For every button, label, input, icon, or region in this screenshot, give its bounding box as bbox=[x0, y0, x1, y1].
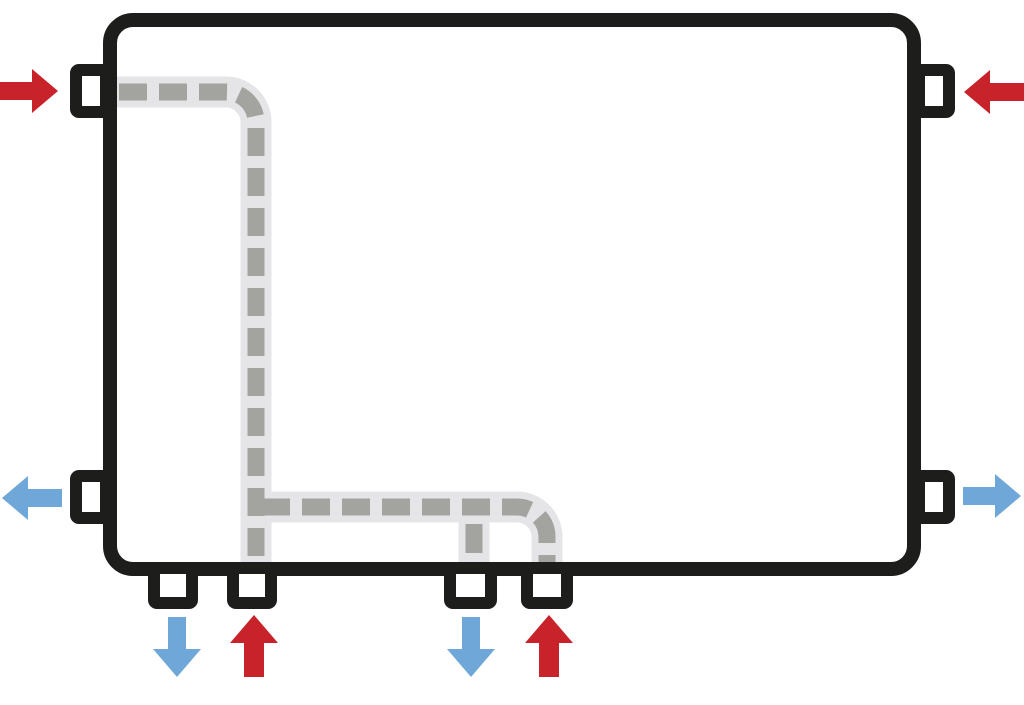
return-arrow-right-bottom-icon bbox=[963, 474, 1021, 518]
radiator-body bbox=[103, 13, 921, 576]
supply-arrow-left-top-icon bbox=[0, 69, 58, 113]
radiator-diagram bbox=[0, 0, 1024, 705]
return-arrow-left-bottom-icon bbox=[2, 476, 62, 520]
port-bottom-4 bbox=[521, 562, 573, 609]
port-right-top bbox=[913, 64, 955, 118]
port-left-bottom bbox=[70, 470, 112, 524]
port-right-bottom bbox=[913, 470, 955, 524]
supply-arrow-right-top-icon bbox=[964, 70, 1024, 114]
port-bottom-2 bbox=[227, 562, 277, 609]
port-left-top bbox=[70, 64, 112, 118]
return-arrow-bottom-1-icon bbox=[153, 617, 201, 677]
supply-arrow-bottom-4-icon bbox=[525, 615, 573, 677]
port-bottom-3 bbox=[444, 562, 497, 609]
port-bottom-1 bbox=[148, 562, 198, 609]
return-arrow-bottom-3-icon bbox=[447, 617, 495, 677]
supply-arrow-bottom-2-icon bbox=[230, 615, 278, 677]
